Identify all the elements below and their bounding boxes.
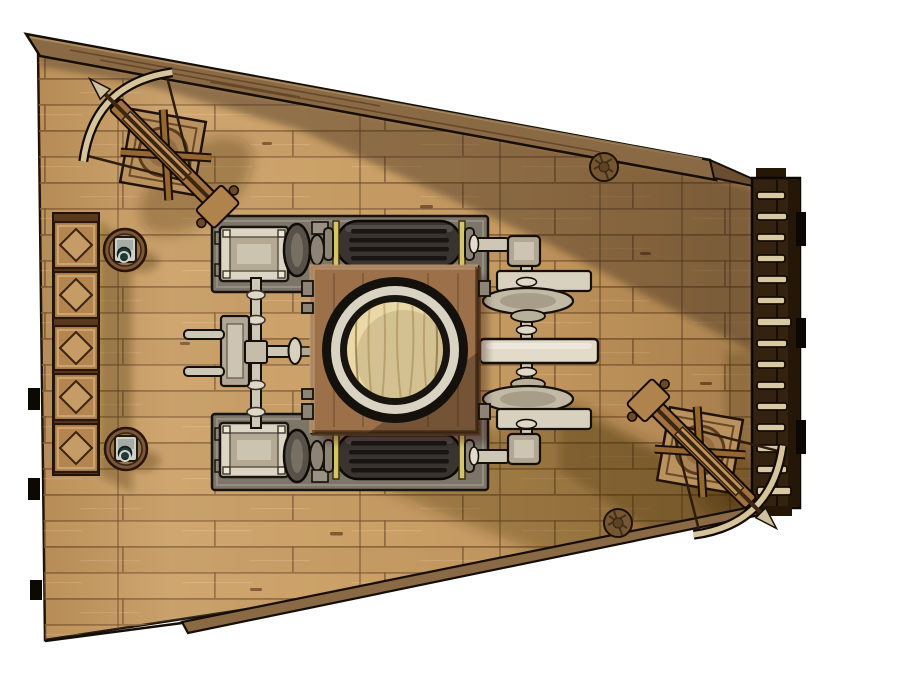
supply-crate[interactable]	[54, 326, 98, 370]
crank-arm	[497, 409, 591, 429]
battlemap-canvas	[0, 0, 900, 700]
flywheel-hub	[291, 233, 303, 267]
crank-collar	[511, 310, 545, 322]
supply-crate[interactable]	[54, 272, 98, 318]
pipe-flange	[247, 291, 265, 300]
deck-scene	[0, 0, 900, 700]
shaft-collar	[470, 235, 479, 253]
shaft-collar	[517, 420, 537, 429]
valve-wheel[interactable]	[289, 338, 302, 364]
crank-counterweight-core	[500, 293, 556, 309]
crank-elbow-core	[514, 242, 534, 260]
crank-main-arm	[480, 339, 598, 363]
crank-counterweight-core	[500, 391, 556, 407]
piston-engine	[215, 423, 288, 477]
supply-crate[interactable]	[54, 374, 98, 420]
crank-elbow-core	[514, 440, 534, 458]
valve-bracket-inner	[227, 324, 243, 378]
valve-output-shaft	[267, 346, 291, 357]
hull-cleat-tabs	[28, 388, 42, 600]
flywheel-hub	[291, 439, 303, 473]
supply-crate[interactable]	[54, 424, 98, 472]
ring-pull-hatch[interactable]	[104, 229, 146, 271]
pipe-flange	[247, 408, 265, 417]
shaft-collar	[470, 447, 479, 465]
shaft-collar	[517, 278, 537, 287]
steam-tank	[324, 221, 474, 267]
shaft-collar	[517, 368, 537, 377]
rope-coil	[604, 509, 632, 537]
flywheel-collar	[310, 235, 324, 265]
rope-coil	[590, 153, 618, 181]
supply-crate[interactable]	[54, 222, 98, 268]
shaft-collar	[517, 326, 537, 335]
crank-main-arm-sheen	[486, 343, 592, 349]
control-valve-cross[interactable]	[245, 341, 267, 363]
valve-handle-pipe	[184, 367, 224, 376]
ring-pull-hatch[interactable]	[105, 428, 147, 470]
steam-engine-assembly	[184, 216, 598, 490]
piston-engine	[215, 227, 288, 281]
central-cargo-hatch[interactable]	[302, 267, 490, 443]
crate-column	[53, 213, 99, 475]
valve-handle-pipe	[184, 330, 224, 339]
flywheel-collar	[310, 441, 324, 471]
